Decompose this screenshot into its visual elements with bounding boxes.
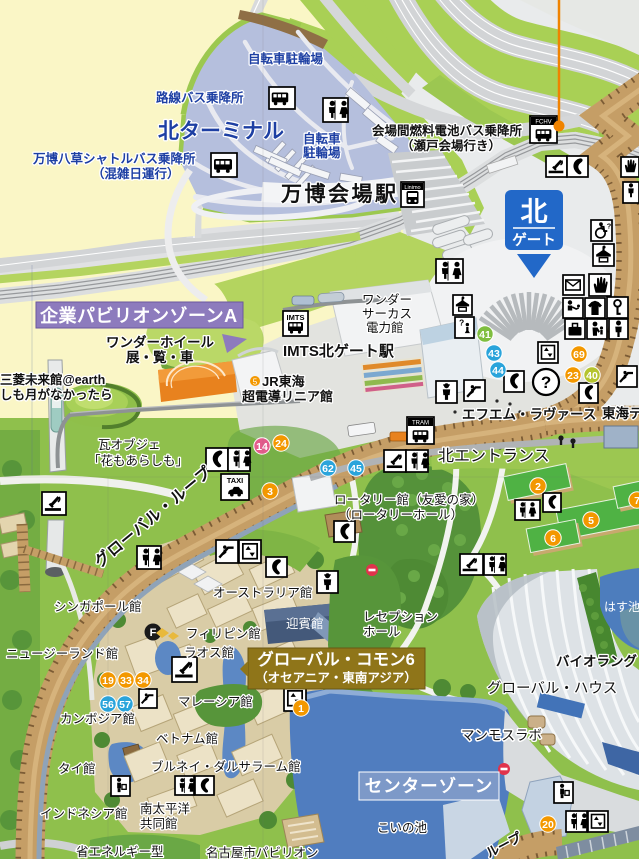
svg-text:北ターミナル: 北ターミナル — [158, 120, 284, 143]
svg-text:43: 43 — [488, 348, 500, 360]
svg-text:ホール: ホール — [363, 625, 401, 639]
svg-text:マレーシア館: マレーシア館 — [178, 694, 253, 709]
svg-text:東海テ: 東海テ — [602, 405, 639, 421]
svg-text:44: 44 — [492, 365, 504, 377]
svg-text:40: 40 — [586, 370, 598, 382]
svg-text:ワンダー: ワンダー — [362, 292, 412, 307]
svg-text:超電導リニア館: 超電導リニア館 — [242, 389, 333, 404]
svg-text:こいの池: こいの池 — [377, 821, 428, 835]
svg-text:共同館: 共同館 — [140, 816, 178, 831]
svg-text:24: 24 — [275, 438, 287, 450]
svg-text:北: 北 — [521, 197, 548, 227]
svg-text:万博八草シャトルバス乗降所: 万博八草シャトルバス乗降所 — [32, 151, 196, 166]
svg-text:（オセアニア・東南アジア）: （オセアニア・東南アジア） — [255, 670, 417, 685]
svg-text:企業パビリオンゾーンA: 企業パビリオンゾーンA — [39, 305, 238, 326]
svg-text:5: 5 — [253, 378, 258, 387]
svg-text:万博会場駅: 万博会場駅 — [280, 182, 399, 206]
svg-text:7: 7 — [634, 495, 639, 507]
svg-text:14: 14 — [256, 441, 268, 453]
svg-text:瓦オブジェ: 瓦オブジェ — [98, 437, 161, 452]
svg-text:23: 23 — [567, 370, 579, 382]
svg-text:JR東海: JR東海 — [262, 374, 305, 389]
svg-text:会場間燃料電池バス乗降所: 会場間燃料電池バス乗降所 — [372, 123, 523, 138]
svg-text:?: ? — [541, 373, 551, 392]
svg-text:名古屋市パビリオン: 名古屋市パビリオン — [206, 845, 319, 859]
svg-text:62: 62 — [322, 463, 334, 475]
svg-text:34: 34 — [137, 675, 149, 687]
svg-text:迎賓館: 迎賓館 — [286, 616, 324, 631]
svg-text:自転車駐輪場: 自転車駐輪場 — [248, 51, 324, 66]
svg-text:グローバル・ハウス: グローバル・ハウス — [487, 680, 617, 697]
svg-text:3: 3 — [267, 486, 273, 498]
svg-text:ワンダーホイール: ワンダーホイール — [106, 334, 214, 350]
svg-text:エフエム・ラヴァース: エフエム・ラヴァース — [462, 406, 596, 422]
svg-text:F: F — [150, 627, 157, 639]
svg-text:45: 45 — [350, 463, 362, 475]
svg-text:展・覧・車: 展・覧・車 — [126, 349, 194, 365]
svg-text:路線バス乗降所: 路線バス乗降所 — [156, 90, 244, 105]
svg-text:駐輪場: 駐輪場 — [303, 145, 341, 160]
svg-text:カンボジア館: カンボジア館 — [60, 711, 135, 726]
svg-text:バイオラング: バイオラング — [556, 653, 637, 669]
svg-text:41: 41 — [479, 329, 491, 341]
svg-text:「花もあらしも」: 「花もあらしも」 — [88, 453, 188, 468]
svg-text:IMTS: IMTS — [287, 313, 305, 322]
svg-text:自転車: 自転車 — [303, 131, 341, 146]
svg-text:6: 6 — [550, 533, 556, 545]
svg-text:57: 57 — [119, 699, 131, 711]
svg-text:センターゾーン: センターゾーン — [365, 776, 494, 796]
svg-text:サーカス: サーカス — [362, 307, 412, 321]
svg-text:省エネルギー型: 省エネルギー型 — [76, 845, 164, 859]
svg-text:はす池: はす池 — [604, 600, 639, 614]
svg-text:三菱未来館@earth: 三菱未来館@earth — [0, 372, 105, 387]
svg-text:シンガポール館: シンガポール館 — [54, 599, 142, 614]
svg-text:20: 20 — [542, 819, 554, 831]
svg-text:インドネシア館: インドネシア館 — [40, 806, 128, 821]
svg-text:フィリピン館: フィリピン館 — [186, 626, 261, 641]
svg-text:マンモスラボ: マンモスラボ — [461, 728, 542, 743]
svg-text:（ロータリーホール）: （ロータリーホール） — [338, 508, 463, 522]
svg-text:南太平洋: 南太平洋 — [140, 801, 190, 816]
svg-text:Linimo: Linimo — [404, 185, 420, 191]
svg-text:ゲート: ゲート — [512, 231, 556, 249]
svg-text:グローバル・コモン6: グローバル・コモン6 — [257, 649, 415, 669]
svg-text:電力館: 電力館 — [366, 320, 404, 335]
svg-text:レセプション: レセプション — [363, 610, 438, 624]
svg-text:TRAM: TRAM — [412, 421, 429, 427]
svg-text:ニュージーランド館: ニュージーランド館 — [6, 646, 118, 661]
svg-text:タイ館: タイ館 — [58, 761, 96, 776]
svg-text:ロータリー館（友愛の家）: ロータリー館（友愛の家） — [334, 492, 484, 507]
svg-text:5: 5 — [588, 515, 594, 527]
svg-text:北エントランス: 北エントランス — [438, 447, 550, 465]
svg-text:ベトナム館: ベトナム館 — [156, 731, 218, 746]
svg-text:ブルネイ・ダルサラーム館: ブルネイ・ダルサラーム館 — [151, 759, 301, 774]
svg-text:（瀬戸会場行き）: （瀬戸会場行き） — [401, 138, 501, 153]
svg-text:FCHV: FCHV — [535, 120, 551, 126]
svg-text:（混雑日運行）: （混雑日運行） — [92, 166, 180, 181]
svg-text:69: 69 — [573, 349, 585, 361]
svg-text:IMTS北ゲート駅: IMTS北ゲート駅 — [283, 342, 395, 360]
svg-text:1: 1 — [298, 703, 304, 715]
svg-text:33: 33 — [120, 675, 132, 687]
svg-text:ラオス館: ラオス館 — [184, 645, 234, 660]
svg-text:しも月がなかったら: しも月がなかったら — [0, 387, 113, 402]
svg-text:2: 2 — [535, 481, 541, 493]
